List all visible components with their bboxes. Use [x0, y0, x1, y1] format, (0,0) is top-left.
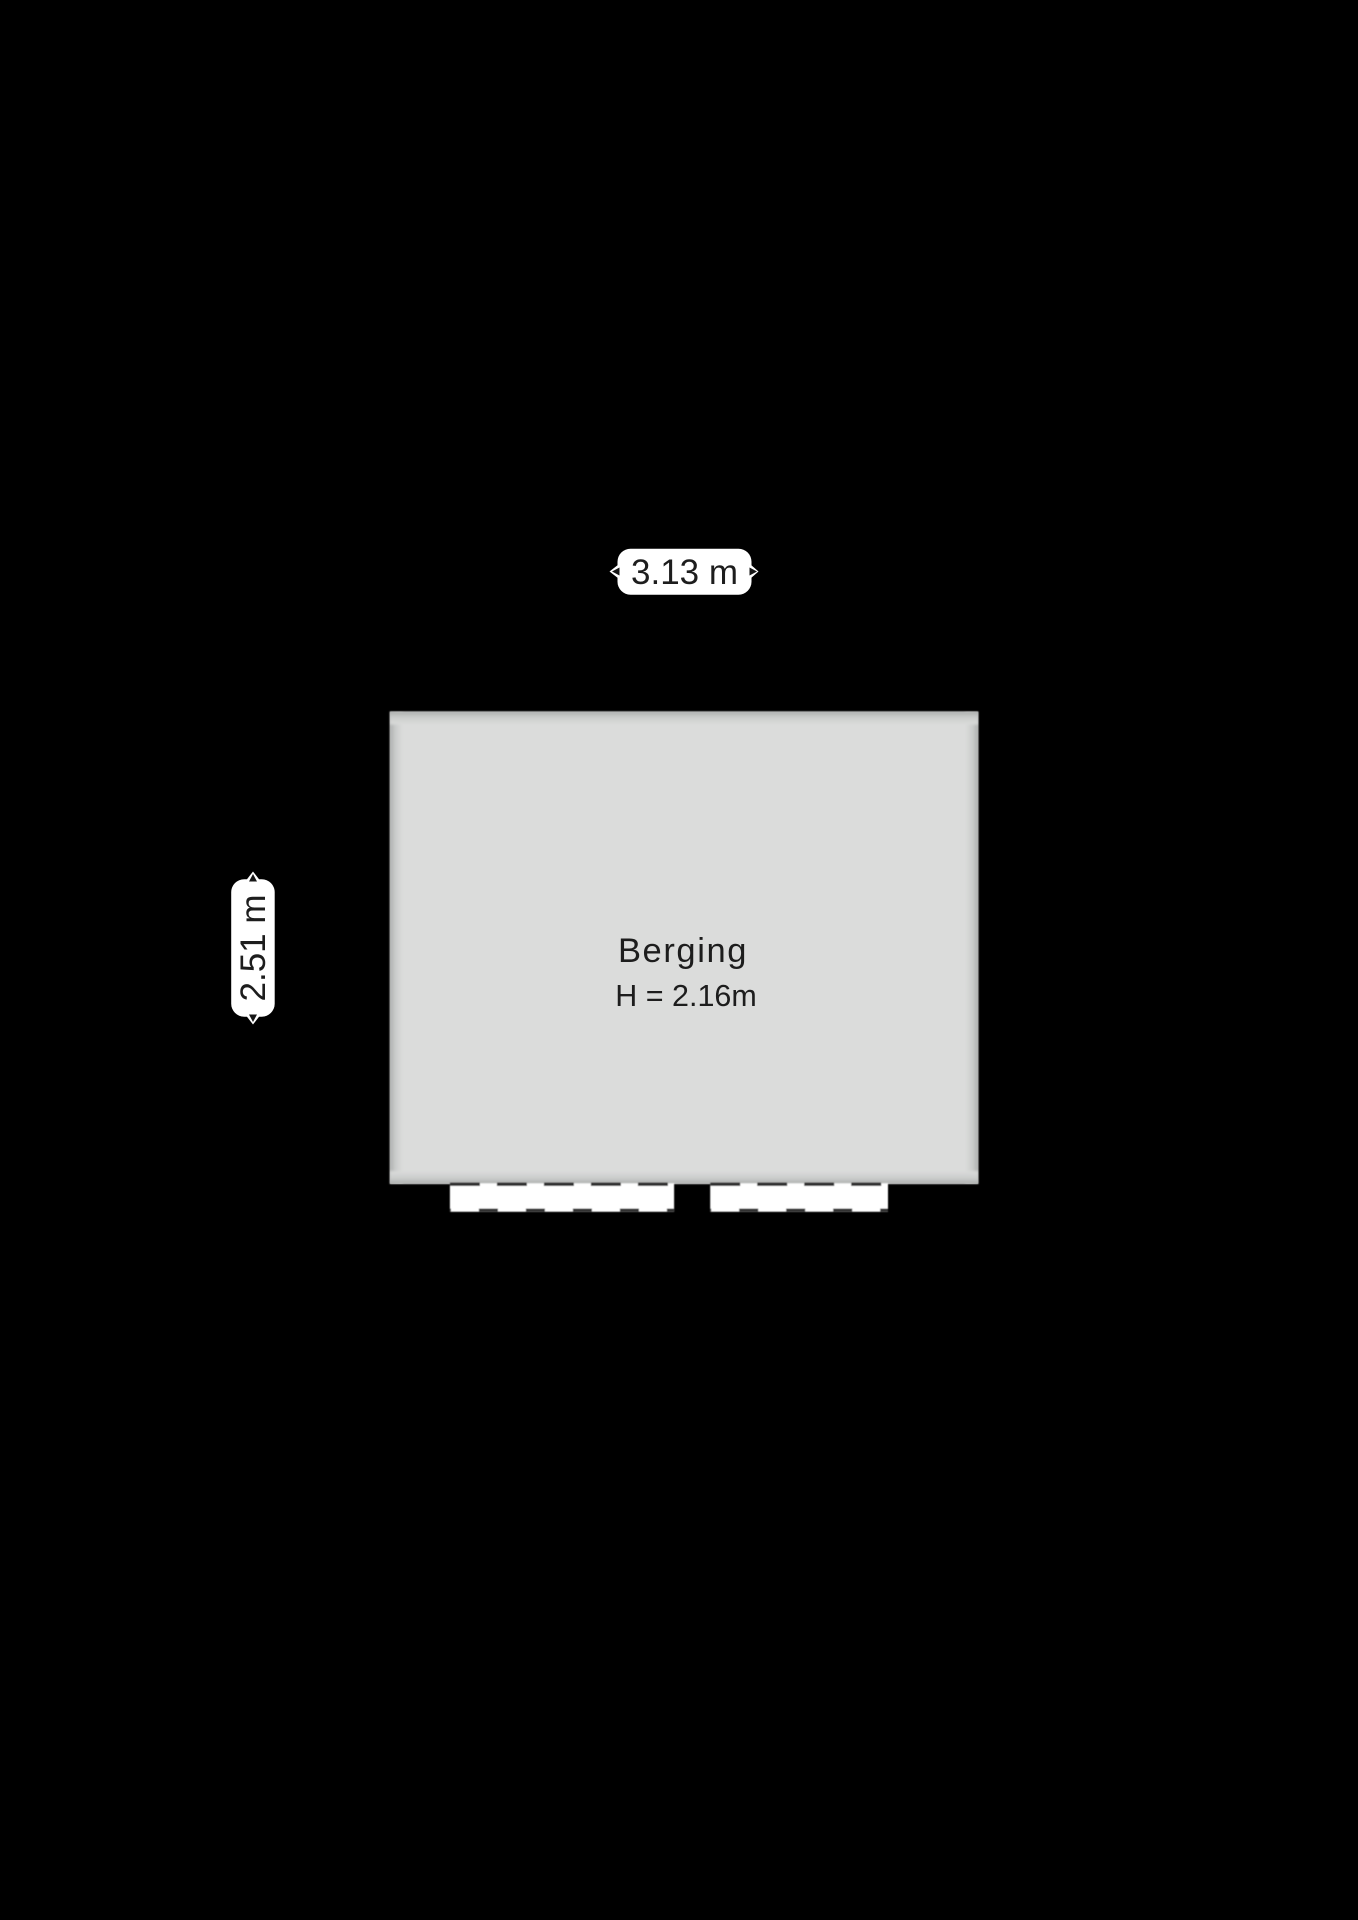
svg-text:2.51 m: 2.51 m	[234, 895, 273, 1002]
svg-text:3.13 m: 3.13 m	[631, 553, 738, 592]
svg-text:Berging: Berging	[618, 932, 748, 970]
svg-text:H = 2.16m: H = 2.16m	[615, 979, 757, 1013]
